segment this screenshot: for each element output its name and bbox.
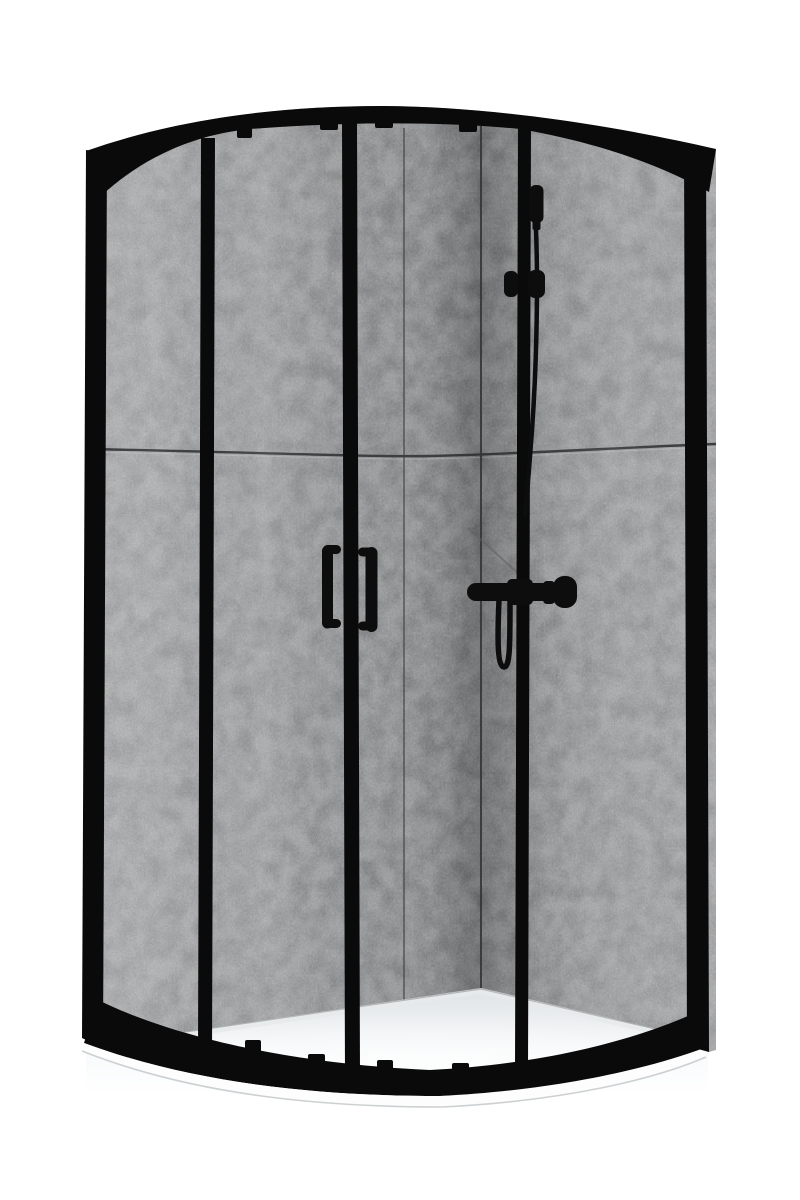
slider-knob-left xyxy=(504,271,518,297)
glass-reflection-streak xyxy=(215,125,315,1025)
glass-reflection-streak xyxy=(110,155,190,1035)
back-walls xyxy=(80,100,720,1110)
mixer-knob xyxy=(553,576,577,608)
shower-enclosure-photo xyxy=(0,0,800,1200)
corner-shadow-left xyxy=(430,100,481,1010)
slider-knob-right xyxy=(528,270,545,298)
center-door-stile xyxy=(342,122,360,1078)
right-upright xyxy=(684,148,709,1052)
left-upright xyxy=(82,150,107,1048)
product-photo xyxy=(0,0,800,1200)
hand-shower-handset xyxy=(530,185,544,223)
left-divider xyxy=(198,138,215,1056)
